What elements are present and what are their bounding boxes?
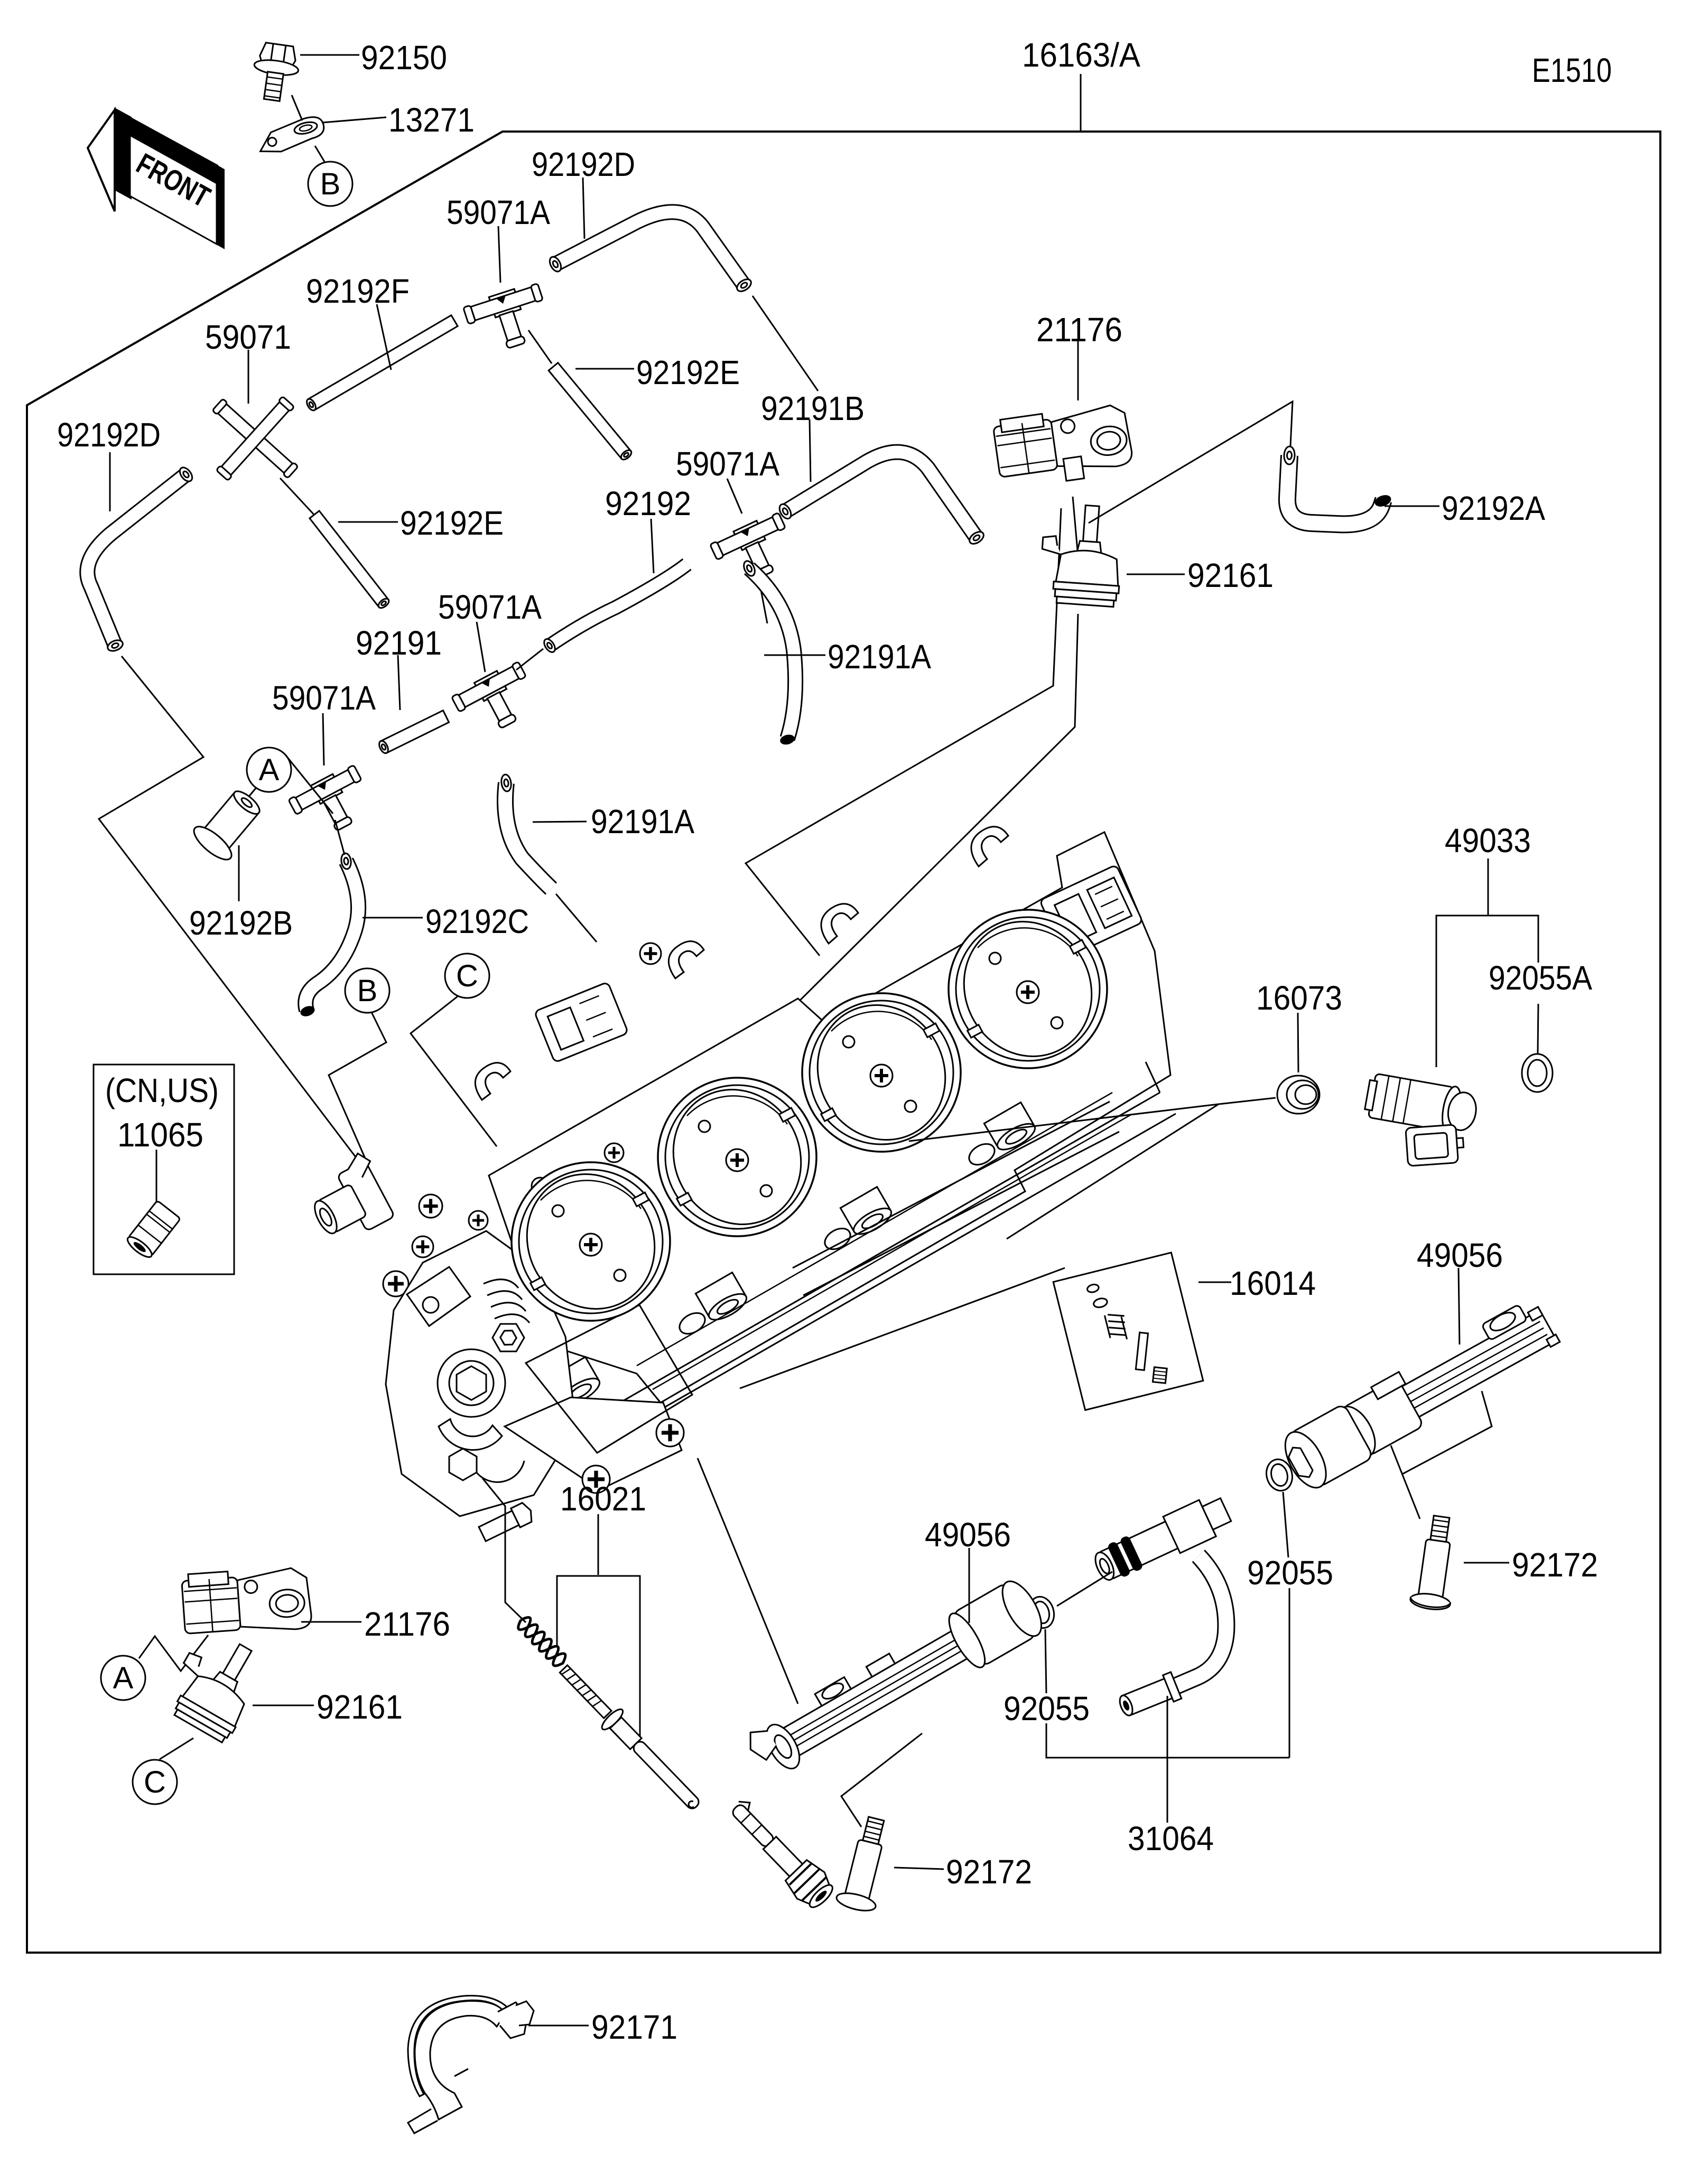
svg-text:B: B bbox=[320, 167, 341, 201]
svg-text:49033: 49033 bbox=[1445, 822, 1531, 860]
svg-text:16014: 16014 bbox=[1230, 1264, 1316, 1302]
svg-text:59071A: 59071A bbox=[272, 679, 376, 717]
svg-text:92192E: 92192E bbox=[400, 504, 504, 542]
svg-text:92172: 92172 bbox=[1512, 1546, 1598, 1584]
svg-text:21176: 21176 bbox=[1036, 311, 1122, 349]
svg-text:92150: 92150 bbox=[361, 39, 447, 77]
svg-text:92055: 92055 bbox=[1004, 1690, 1090, 1728]
svg-text:11065: 11065 bbox=[117, 1116, 203, 1154]
svg-text:92192D: 92192D bbox=[532, 145, 635, 183]
svg-text:92192A: 92192A bbox=[1442, 489, 1545, 527]
svg-text:92191A: 92191A bbox=[828, 638, 931, 676]
svg-text:21176: 21176 bbox=[364, 1605, 450, 1643]
svg-text:49056: 49056 bbox=[925, 1516, 1011, 1554]
svg-text:92171: 92171 bbox=[591, 2008, 677, 2046]
svg-text:49056: 49056 bbox=[1417, 1236, 1503, 1274]
svg-text:92191A: 92191A bbox=[591, 802, 694, 841]
svg-text:92192B: 92192B bbox=[189, 904, 293, 942]
svg-text:59071A: 59071A bbox=[438, 588, 542, 626]
svg-text:16163/A: 16163/A bbox=[1022, 36, 1140, 74]
svg-text:59071A: 59071A bbox=[676, 445, 779, 483]
svg-text:92192: 92192 bbox=[605, 484, 691, 522]
svg-text:A: A bbox=[113, 1661, 134, 1695]
svg-text:92192E: 92192E bbox=[636, 353, 740, 391]
svg-text:C: C bbox=[456, 959, 478, 993]
svg-text:A: A bbox=[259, 753, 280, 787]
svg-text:31064: 31064 bbox=[1128, 1819, 1214, 1858]
svg-text:92192D: 92192D bbox=[57, 416, 161, 454]
svg-text:59071: 59071 bbox=[205, 318, 291, 356]
svg-text:92192C: 92192C bbox=[425, 902, 529, 940]
svg-text:B: B bbox=[357, 974, 378, 1008]
svg-text:92172: 92172 bbox=[946, 1853, 1032, 1891]
svg-text:59071A: 59071A bbox=[447, 193, 550, 231]
svg-text:92191B: 92191B bbox=[761, 389, 865, 427]
svg-text:92055A: 92055A bbox=[1489, 959, 1592, 997]
svg-text:92161: 92161 bbox=[317, 1688, 403, 1726]
svg-text:16021: 16021 bbox=[560, 1480, 646, 1518]
svg-text:92192F: 92192F bbox=[306, 272, 410, 310]
svg-text:13271: 13271 bbox=[388, 101, 475, 139]
svg-text:92191: 92191 bbox=[356, 624, 442, 662]
svg-text:16073: 16073 bbox=[1256, 979, 1342, 1017]
svg-text:92055: 92055 bbox=[1247, 1554, 1333, 1592]
svg-text:E1510: E1510 bbox=[1532, 51, 1612, 89]
svg-text:(CN,US): (CN,US) bbox=[105, 1071, 219, 1109]
svg-text:C: C bbox=[144, 1765, 166, 1799]
svg-text:92161: 92161 bbox=[1187, 556, 1274, 594]
